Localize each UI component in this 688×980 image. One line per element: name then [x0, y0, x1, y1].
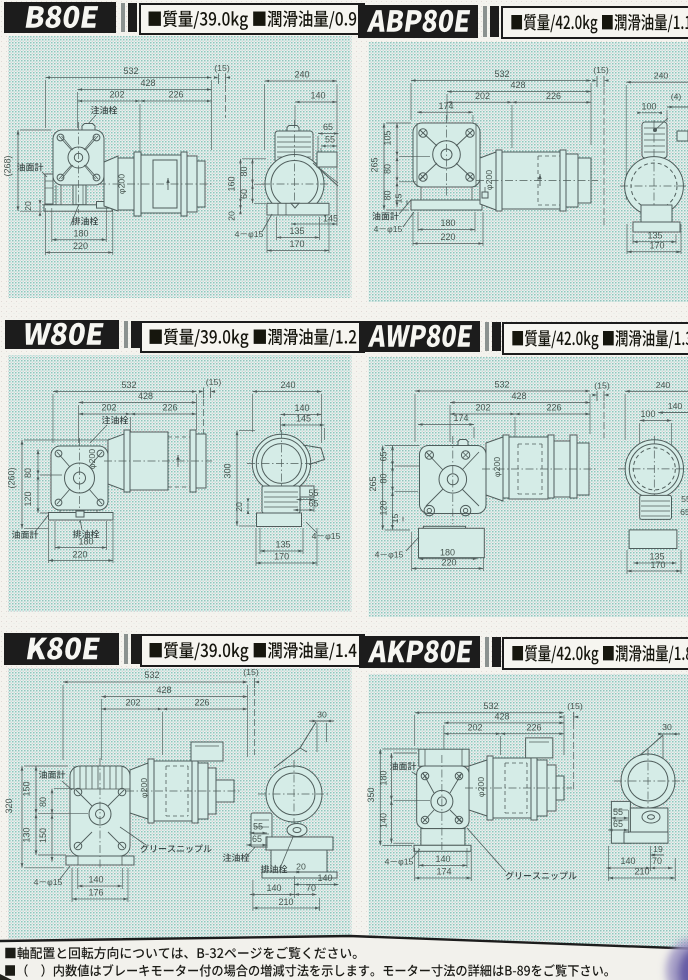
svg-text:φ200: φ200 — [87, 449, 97, 469]
svg-text:226: 226 — [546, 91, 561, 101]
svg-text:140: 140 — [88, 875, 103, 885]
svg-text:φ200: φ200 — [492, 457, 502, 477]
svg-text:170: 170 — [650, 560, 665, 570]
svg-text:20: 20 — [296, 862, 306, 872]
svg-text:(15): (15) — [567, 701, 583, 711]
svg-text:210: 210 — [634, 867, 649, 877]
svg-text:240: 240 — [654, 71, 669, 81]
svg-text:174: 174 — [436, 867, 451, 877]
svg-text:220: 220 — [440, 232, 455, 242]
svg-text:φ200: φ200 — [476, 777, 486, 797]
svg-text:(15): (15) — [594, 381, 610, 391]
svg-text:226: 226 — [526, 722, 541, 732]
svg-text:55: 55 — [308, 488, 318, 498]
svg-text:80: 80 — [38, 797, 48, 807]
svg-text:532: 532 — [483, 701, 498, 711]
svg-text:(15): (15) — [243, 667, 259, 677]
svg-text:(15): (15) — [214, 63, 230, 73]
svg-text:120: 120 — [379, 500, 389, 515]
svg-text:140: 140 — [668, 401, 683, 411]
svg-text:226: 226 — [162, 403, 177, 413]
svg-text:120: 120 — [23, 491, 33, 506]
svg-text:φ200: φ200 — [484, 170, 494, 190]
svg-text:145: 145 — [323, 214, 338, 224]
svg-text:226: 226 — [168, 90, 183, 100]
svg-text:532: 532 — [494, 380, 509, 390]
svg-text:240: 240 — [656, 380, 671, 390]
svg-text:(260): (260) — [7, 467, 17, 488]
svg-text:55: 55 — [613, 807, 623, 817]
svg-text:55: 55 — [681, 494, 688, 504]
svg-text:428: 428 — [511, 391, 526, 401]
svg-text:55: 55 — [253, 822, 263, 832]
svg-text:(15): (15) — [593, 65, 609, 75]
svg-text:202: 202 — [475, 403, 490, 413]
svg-text:4－φ15: 4－φ15 — [374, 224, 403, 234]
svg-text:140: 140 — [266, 883, 281, 893]
svg-text:140: 140 — [620, 856, 635, 866]
svg-text:100: 100 — [640, 409, 655, 419]
svg-text:320: 320 — [4, 798, 14, 813]
svg-text:130: 130 — [22, 827, 32, 842]
svg-text:135: 135 — [289, 226, 304, 236]
svg-text:240: 240 — [280, 380, 295, 390]
svg-text:135: 135 — [275, 540, 290, 550]
svg-text:φ200: φ200 — [117, 174, 127, 194]
svg-text:428: 428 — [138, 391, 153, 401]
svg-text:170: 170 — [274, 552, 289, 562]
svg-text:428: 428 — [494, 712, 509, 722]
svg-text:20: 20 — [23, 201, 33, 211]
svg-text:226: 226 — [194, 698, 209, 708]
svg-text:140: 140 — [435, 854, 450, 864]
svg-text:174: 174 — [438, 101, 453, 111]
svg-text:15: 15 — [390, 514, 400, 524]
svg-text:160: 160 — [227, 176, 237, 191]
svg-text:428: 428 — [156, 685, 171, 695]
svg-text:80: 80 — [383, 190, 393, 200]
svg-text:140: 140 — [310, 91, 325, 101]
svg-text:220: 220 — [73, 241, 88, 251]
svg-text:(4): (4) — [671, 92, 682, 102]
svg-text:532: 532 — [494, 69, 509, 79]
svg-text:150: 150 — [38, 828, 48, 843]
svg-text:532: 532 — [123, 66, 138, 76]
svg-text:176: 176 — [88, 888, 103, 898]
svg-text:202: 202 — [467, 722, 482, 732]
svg-text:202: 202 — [101, 403, 116, 413]
svg-text:70: 70 — [652, 856, 662, 866]
svg-text:15: 15 — [394, 194, 404, 204]
svg-text:100: 100 — [641, 102, 656, 112]
svg-text:170: 170 — [289, 239, 304, 249]
svg-text:20: 20 — [227, 211, 237, 221]
svg-text:202: 202 — [125, 698, 140, 708]
svg-text:350: 350 — [366, 787, 376, 802]
svg-text:210: 210 — [278, 897, 293, 907]
svg-text:φ200: φ200 — [139, 778, 149, 798]
svg-text:105: 105 — [383, 130, 393, 145]
svg-text:180: 180 — [73, 229, 88, 239]
svg-text:180: 180 — [78, 537, 93, 547]
svg-text:80: 80 — [23, 468, 33, 478]
svg-text:202: 202 — [475, 91, 490, 101]
svg-text:240: 240 — [294, 70, 309, 80]
svg-text:30: 30 — [662, 722, 672, 732]
svg-text:140: 140 — [379, 813, 389, 828]
svg-text:532: 532 — [144, 670, 159, 680]
svg-text:80: 80 — [383, 164, 393, 174]
svg-text:265: 265 — [368, 476, 378, 491]
svg-text:220: 220 — [441, 558, 456, 568]
svg-text:300: 300 — [223, 463, 233, 478]
svg-text:60: 60 — [239, 189, 249, 199]
svg-text:65: 65 — [308, 499, 318, 509]
svg-text:(15): (15) — [206, 377, 222, 387]
svg-text:145: 145 — [296, 414, 311, 424]
svg-text:4－φ15: 4－φ15 — [34, 877, 63, 887]
svg-text:80: 80 — [239, 166, 249, 176]
svg-text:428: 428 — [510, 80, 525, 90]
svg-text:170: 170 — [649, 240, 664, 250]
svg-text:180: 180 — [440, 548, 455, 558]
svg-text:532: 532 — [121, 380, 136, 390]
svg-text:65: 65 — [379, 451, 389, 461]
svg-text:20: 20 — [234, 502, 244, 512]
svg-text:174: 174 — [453, 413, 468, 423]
svg-text:428: 428 — [140, 78, 155, 88]
svg-text:65: 65 — [323, 122, 333, 132]
svg-text:19: 19 — [653, 844, 663, 854]
svg-text:80: 80 — [379, 473, 389, 483]
svg-text:140: 140 — [294, 403, 309, 413]
svg-text:265: 265 — [370, 157, 380, 172]
svg-text:4－φ15: 4－φ15 — [312, 531, 341, 541]
svg-text:202: 202 — [109, 90, 124, 100]
svg-text:135: 135 — [647, 230, 662, 240]
svg-text:4－φ15: 4－φ15 — [385, 857, 414, 867]
svg-text:180: 180 — [440, 218, 455, 228]
svg-text:180: 180 — [379, 770, 389, 785]
svg-text:4－φ15: 4－φ15 — [235, 229, 264, 239]
svg-text:70: 70 — [306, 883, 316, 893]
svg-text:30: 30 — [317, 710, 327, 720]
svg-text:55: 55 — [325, 135, 335, 145]
svg-text:65: 65 — [252, 834, 262, 844]
svg-text:4－φ15: 4－φ15 — [375, 550, 404, 560]
svg-text:150: 150 — [22, 781, 32, 796]
svg-text:65: 65 — [680, 507, 688, 517]
svg-text:65: 65 — [613, 819, 623, 829]
svg-text:220: 220 — [72, 550, 87, 560]
svg-text:(268): (268) — [3, 155, 13, 176]
svg-text:226: 226 — [546, 403, 561, 413]
svg-text:140: 140 — [317, 873, 332, 883]
